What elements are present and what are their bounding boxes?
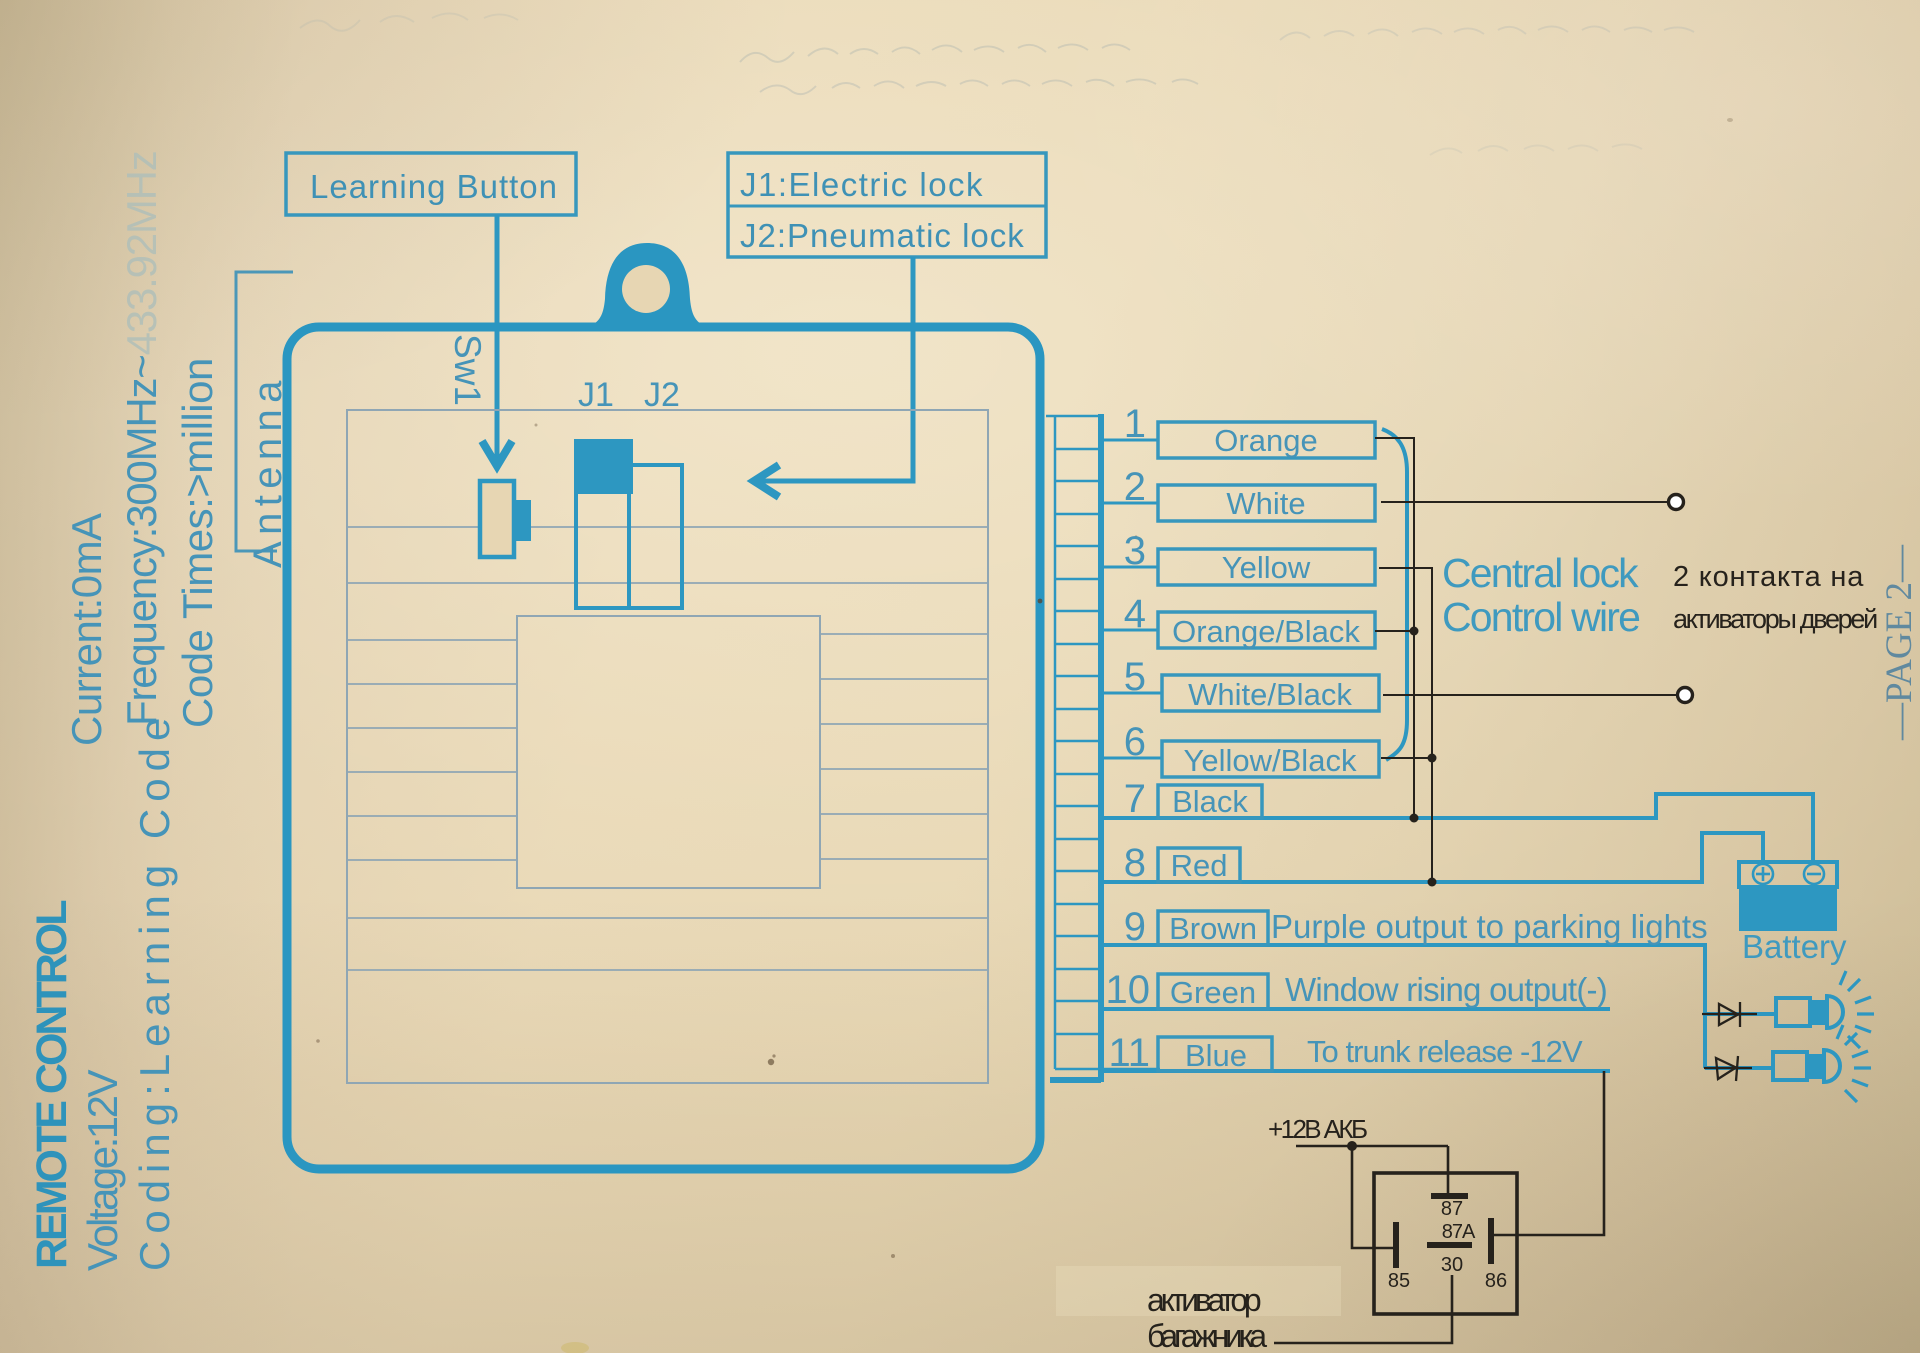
- svg-text:86: 86: [1485, 1270, 1507, 1292]
- svg-text:87: 87: [1441, 1198, 1463, 1220]
- svg-text:3: 3: [1124, 529, 1146, 573]
- svg-text:Brown: Brown: [1169, 911, 1257, 946]
- svg-text:+12В АКБ: +12В АКБ: [1268, 1114, 1367, 1144]
- svg-text:10: 10: [1106, 968, 1151, 1012]
- svg-text:Window rising output(-): Window rising output(-): [1285, 971, 1607, 1008]
- svg-text:Antenna: Antenna: [246, 374, 290, 568]
- svg-text:8: 8: [1124, 841, 1146, 885]
- svg-text:Frequency:300MHz~433.92MHz: Frequency:300MHz~433.92MHz: [118, 151, 165, 726]
- svg-text:Learning Button: Learning Button: [310, 168, 558, 205]
- svg-text:Orange: Orange: [1214, 423, 1317, 458]
- svg-text:Battery: Battery: [1742, 928, 1847, 965]
- svg-text:Yellow/Black: Yellow/Black: [1184, 743, 1357, 778]
- svg-text:2 контакта на: 2 контакта на: [1673, 561, 1864, 593]
- svg-text:REMOTE CONTROL: REMOTE CONTROL: [28, 901, 76, 1269]
- svg-text:багажника: багажника: [1147, 1318, 1267, 1353]
- svg-text:2: 2: [1124, 465, 1146, 509]
- svg-text:To trunk release -12V: To trunk release -12V: [1307, 1034, 1583, 1069]
- svg-text:7: 7: [1124, 777, 1146, 821]
- svg-text:1: 1: [1124, 402, 1146, 446]
- svg-text:активаторы дверей: активаторы дверей: [1673, 604, 1877, 634]
- svg-text:Central lock: Central lock: [1442, 550, 1639, 596]
- svg-text:—PAGE 2—: —PAGE 2—: [1879, 544, 1920, 741]
- svg-text:Coding:Learning Code: Coding:Learning Code: [131, 711, 178, 1271]
- svg-text:11: 11: [1108, 1031, 1150, 1075]
- svg-text:Voltage:12V: Voltage:12V: [79, 1069, 126, 1271]
- svg-text:Red: Red: [1171, 848, 1228, 883]
- svg-text:White: White: [1226, 486, 1305, 521]
- svg-text:J2:Pneumatic lock: J2:Pneumatic lock: [740, 217, 1025, 254]
- svg-text:4: 4: [1124, 592, 1146, 636]
- svg-text:Green: Green: [1170, 975, 1256, 1010]
- svg-text:Code Times:>million: Code Times:>million: [174, 358, 221, 728]
- svg-text:Blue: Blue: [1185, 1038, 1247, 1073]
- svg-text:Current:0mA: Current:0mA: [63, 513, 110, 746]
- svg-text:J1: J1: [578, 376, 614, 414]
- svg-text:30: 30: [1441, 1254, 1463, 1276]
- svg-text:J2: J2: [644, 376, 680, 414]
- svg-text:Control wire: Control wire: [1442, 594, 1639, 640]
- svg-text:Black: Black: [1172, 784, 1248, 819]
- svg-text:Orange/Black: Orange/Black: [1172, 614, 1360, 649]
- svg-text:J1:Electric lock: J1:Electric lock: [740, 166, 984, 203]
- svg-text:6: 6: [1124, 720, 1146, 764]
- svg-text:активатор: активатор: [1147, 1282, 1261, 1318]
- svg-text:Yellow: Yellow: [1222, 550, 1311, 585]
- svg-text:5: 5: [1124, 655, 1146, 699]
- svg-text:Sw1: Sw1: [447, 334, 488, 406]
- svg-text:9: 9: [1124, 905, 1146, 949]
- svg-text:Purple output to parking light: Purple output to parking lights: [1271, 908, 1708, 945]
- svg-text:85: 85: [1388, 1270, 1410, 1292]
- svg-text:87A: 87A: [1442, 1221, 1476, 1243]
- svg-text:White/Black: White/Black: [1188, 677, 1352, 712]
